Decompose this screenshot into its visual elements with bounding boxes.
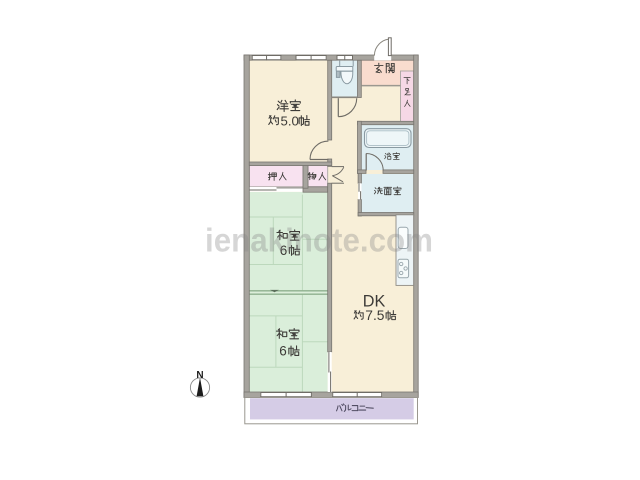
svg-text:N: N xyxy=(196,370,203,381)
svg-text:7.5: 7.5 xyxy=(365,308,385,323)
svg-text:6: 6 xyxy=(279,343,287,358)
svg-text:5.0: 5.0 xyxy=(281,113,299,128)
svg-text:ienakinote.com: ienakinote.com xyxy=(205,223,433,260)
